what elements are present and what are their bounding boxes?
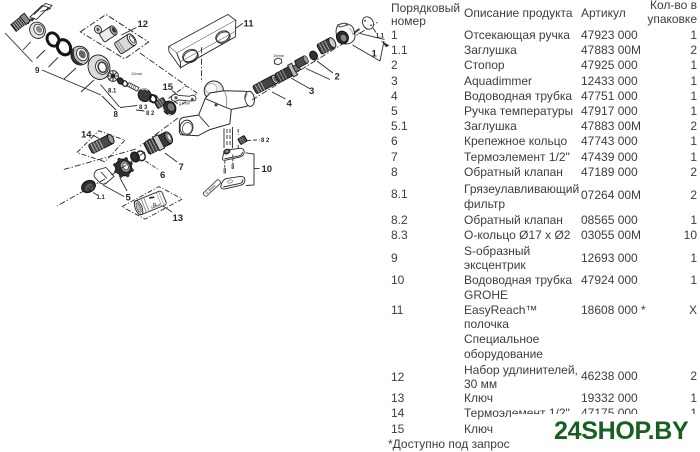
svg-text:15: 15 [163,82,174,93]
svg-text:1.1: 1.1 [97,195,106,201]
svg-text:13: 13 [173,213,184,224]
svg-text:14: 14 [81,130,92,141]
svg-text:8: 8 [114,110,119,119]
svg-text:1: 1 [372,49,378,60]
svg-text:2: 2 [335,72,340,83]
svg-text:4: 4 [287,99,293,110]
svg-text:1.1: 1.1 [376,34,385,40]
svg-text:6: 6 [160,170,165,181]
svg-text:8.1: 8.1 [108,88,117,94]
svg-text:8 2: 8 2 [261,138,270,144]
svg-text:10: 10 [262,164,273,175]
svg-text:9: 9 [35,66,40,75]
svg-text:8 2: 8 2 [146,111,155,117]
svg-text:3: 3 [309,86,314,97]
svg-text:11: 11 [244,18,255,29]
svg-text:12: 12 [138,19,149,30]
svg-text:7: 7 [179,162,184,173]
svg-text:12mm: 12mm [131,71,143,76]
svg-text:19mm: 19mm [273,53,285,58]
svg-text:17mm: 17mm [179,101,191,106]
